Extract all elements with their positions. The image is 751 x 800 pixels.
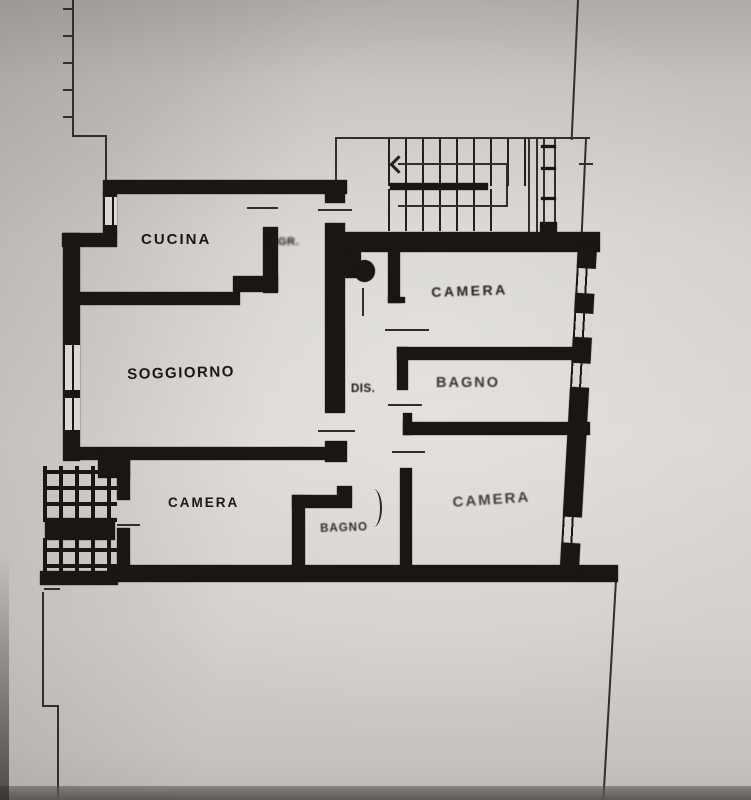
room-label-bedroom-southeast: CAMERA xyxy=(452,489,531,511)
room-label-bedroom-north: CAMERA xyxy=(431,281,508,300)
window-bedroom-north-2 xyxy=(573,313,593,338)
wall-seg xyxy=(571,337,591,364)
wall-entry-jamb-bulb xyxy=(354,260,375,282)
photo-left-edge-shadow xyxy=(0,555,9,800)
wall-bathroom-main-top xyxy=(397,347,587,360)
wall-kitchen-top xyxy=(103,180,347,194)
wall-bathroom-main-top-stub xyxy=(397,347,408,390)
window-living-2 xyxy=(63,398,80,430)
window-living-1 xyxy=(63,345,80,390)
stairs-landing-bar xyxy=(390,183,488,190)
room-label-bedroom-southwest: CAMERA xyxy=(168,495,239,510)
wall-bedroom-southeast-left xyxy=(400,468,412,578)
room-label-kitchen: CUCINA xyxy=(141,231,211,248)
shaft-rung-3 xyxy=(541,197,556,200)
door-balcony xyxy=(117,524,140,526)
stair-well-right xyxy=(506,163,508,207)
wall-night-zone-top xyxy=(345,232,600,252)
balcony-grid-upper xyxy=(43,466,117,522)
floor-plan-drawing: CUCINA INGR. SOGGIORNO DIS. CAMERA BAGNO… xyxy=(0,0,751,800)
wall-seg xyxy=(559,543,580,578)
shaft-line-1 xyxy=(528,139,530,232)
room-label-bathroom-small: BAGNO xyxy=(320,521,368,535)
door-entry xyxy=(318,209,352,211)
stair-well-bottom xyxy=(398,205,508,207)
balcony-bottom-edge xyxy=(40,571,118,585)
wall-bathroom-small-jamb xyxy=(337,486,352,497)
wall-seg xyxy=(574,293,594,314)
wall-seg xyxy=(563,387,589,518)
boundary-line-top-right xyxy=(571,0,579,140)
door-bathroom-small-arc xyxy=(368,489,382,527)
balcony-middle-band xyxy=(45,518,115,540)
wall-bottom xyxy=(108,565,618,582)
stair-well-top xyxy=(398,163,508,165)
wall-seg xyxy=(577,245,597,269)
wall-living-hall-lower xyxy=(325,223,345,413)
wall-kitchen-bottom xyxy=(80,292,240,305)
window-bedroom-north-1 xyxy=(575,268,595,294)
wall-bedroom-southwest-left-upper xyxy=(117,460,130,500)
room-label-living: SOGGIORNO xyxy=(127,363,235,383)
photo-bottom-shadow xyxy=(0,786,751,800)
door-hall-dash xyxy=(362,288,364,316)
wall-hall-bedroom-north-stub xyxy=(388,297,405,303)
window-bathroom-main xyxy=(570,363,590,388)
boundary-stub-left-of-stairs xyxy=(335,138,337,184)
window-kitchen xyxy=(103,197,117,225)
wall-living-hall-upper xyxy=(325,182,345,203)
wall-hall-bedroom-north xyxy=(388,250,400,303)
shaft-rung-2 xyxy=(541,167,556,170)
shaft-rung-1 xyxy=(541,145,556,148)
door-bathroom-main xyxy=(388,404,422,406)
boundary-step-vertical xyxy=(105,136,107,183)
floor-plan-photo: CUCINA INGR. SOGGIORNO DIS. CAMERA BAGNO… xyxy=(0,0,751,800)
door-bedroom-southeast xyxy=(392,451,425,453)
boundary-line-top-left xyxy=(72,0,74,136)
shaft-line-4 xyxy=(554,139,556,232)
boundary-step-horizontal xyxy=(72,135,107,137)
room-label-bathroom-main: BAGNO xyxy=(436,375,500,391)
wall-divider-jamb-right xyxy=(325,441,347,462)
tick-right xyxy=(579,163,593,165)
door-kitchen xyxy=(247,207,278,209)
room-label-entry: INGR. xyxy=(266,236,299,248)
boundary-bottom-left-vertical xyxy=(42,592,44,707)
boundary-bottom-right xyxy=(602,580,617,800)
wall-bathroom-main-bottom xyxy=(403,422,590,435)
shaft-rung-4 xyxy=(540,222,557,232)
stairs-lower-flight xyxy=(388,189,492,231)
shaft-line-2 xyxy=(536,139,538,232)
wall-bathroom-main-bottom-stub xyxy=(403,413,412,435)
door-bedroom-southwest xyxy=(318,430,355,432)
window-bedroom-southeast xyxy=(561,517,581,544)
shaft-line-3 xyxy=(543,139,545,232)
boundary-bottom-left-step xyxy=(44,588,60,590)
wall-exterior-right xyxy=(559,245,597,578)
wall-kitchen-step xyxy=(233,276,278,292)
door-bedroom-north xyxy=(385,329,429,331)
room-label-hallway: DIS. xyxy=(351,383,375,395)
dimension-ticks-left xyxy=(63,8,72,128)
